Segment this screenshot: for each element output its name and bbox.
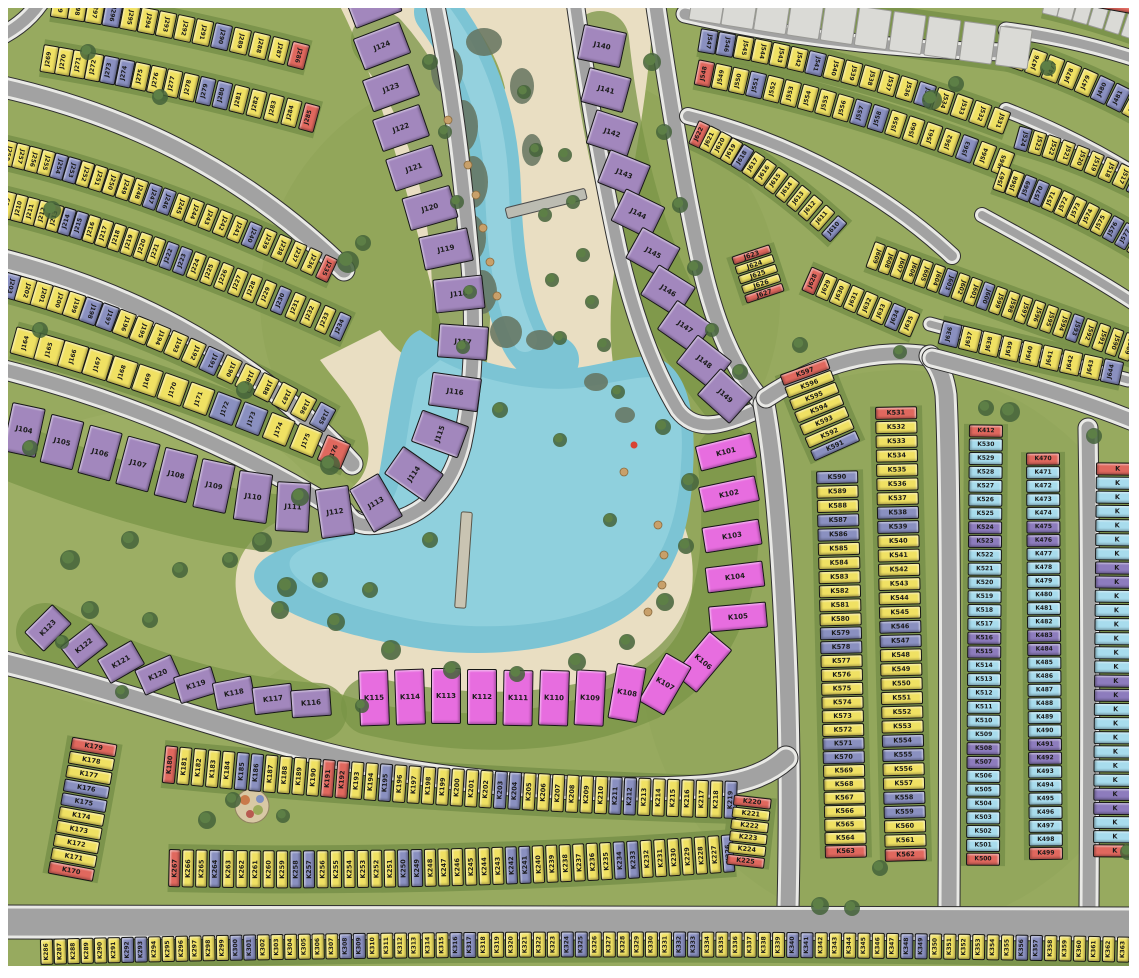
plot-K565[interactable]: K565 <box>824 818 866 832</box>
plot-K195[interactable]: K195 <box>378 763 394 802</box>
plot-K491[interactable]: K491 <box>1028 738 1062 751</box>
plot-K325[interactable]: K325 <box>575 931 588 957</box>
plot-K249[interactable]: K249 <box>410 849 423 887</box>
plot-K210[interactable]: K210 <box>594 776 609 815</box>
plot-K483[interactable]: K483 <box>1027 629 1061 642</box>
plot-K322[interactable]: K322 <box>533 932 546 958</box>
plot-K297[interactable]: K297 <box>189 935 202 961</box>
plot-K476[interactable]: K476 <box>1026 534 1060 547</box>
plot-K345[interactable]: K345 <box>857 933 870 959</box>
plot-K550[interactable]: K550 <box>880 677 922 691</box>
plot-K574[interactable]: K574 <box>821 696 863 710</box>
plot-K319[interactable]: K319 <box>491 932 504 958</box>
plot-K292[interactable]: K292 <box>121 937 134 963</box>
plot-K522[interactable]: K522 <box>968 549 1002 562</box>
plot-K528[interactable]: K528 <box>969 466 1003 479</box>
plot-K103[interactable]: K103 <box>701 519 762 554</box>
plot-K239[interactable]: K239 <box>545 844 559 883</box>
plot-K340[interactable]: K340 <box>786 932 799 958</box>
plot-K503[interactable]: K503 <box>966 811 1000 824</box>
plot-K118[interactable]: K118 <box>212 675 257 710</box>
plot-K563[interactable]: K563 <box>825 845 867 859</box>
plot-K194[interactable]: K194 <box>363 762 379 801</box>
plot-K567[interactable]: K567 <box>824 791 866 805</box>
plot-K354[interactable]: K354 <box>986 934 999 960</box>
plot-K244[interactable]: K244 <box>478 847 492 885</box>
plot-K477[interactable]: K477 <box>1027 548 1061 561</box>
plot-K206[interactable]: K206 <box>536 773 551 812</box>
plot-K323[interactable]: K323 <box>547 932 560 958</box>
plot-K486[interactable]: K486 <box>1027 670 1061 683</box>
plot-K341[interactable]: K341 <box>800 932 813 958</box>
plot-K545[interactable]: K545 <box>879 606 921 620</box>
plot-K558[interactable]: K558 <box>883 791 925 805</box>
plot-K473[interactable]: K473 <box>1026 493 1060 506</box>
plot-K326[interactable]: K326 <box>589 931 602 957</box>
plot-K487[interactable]: K487 <box>1027 684 1061 697</box>
plot-K548[interactable]: K548 <box>880 648 922 662</box>
plot-J286[interactable]: J286 <box>286 41 310 71</box>
plot-K557[interactable]: K557 <box>883 777 925 791</box>
plot-K492[interactable]: K492 <box>1028 752 1062 765</box>
plot-K495[interactable]: K495 <box>1028 792 1062 805</box>
plot-K255[interactable]: K255 <box>330 850 343 888</box>
plot-K538[interactable]: K538 <box>877 506 919 520</box>
plot-K362[interactable]: K362 <box>1102 936 1115 962</box>
plot-K488[interactable]: K488 <box>1028 697 1062 710</box>
plot-K256[interactable]: K256 <box>316 850 329 888</box>
plot-K213[interactable]: K213 <box>637 778 652 816</box>
plot-K350[interactable]: K350 <box>929 933 942 959</box>
plot-J122[interactable]: J122 <box>372 104 430 152</box>
plot-K585[interactable]: K585 <box>818 542 860 556</box>
plot-K294[interactable]: K294 <box>148 936 161 962</box>
plot-K237[interactable]: K237 <box>572 843 586 882</box>
plot-K546[interactable]: K546 <box>879 620 921 634</box>
plot-K498[interactable]: K498 <box>1029 833 1063 846</box>
plot-K305[interactable]: K305 <box>298 934 311 960</box>
plot-K324[interactable]: K324 <box>561 932 574 958</box>
plot-K331[interactable]: K331 <box>659 931 672 957</box>
plot-J120[interactable]: J120 <box>401 185 458 231</box>
plot-K568[interactable]: K568 <box>823 777 865 791</box>
plot-K470[interactable]: K470 <box>1026 452 1060 465</box>
plot-K539[interactable]: K539 <box>877 520 919 534</box>
plot-K344[interactable]: K344 <box>843 932 856 958</box>
plot-K234[interactable]: K234 <box>613 841 627 880</box>
plot-K513[interactable]: K513 <box>967 673 1001 686</box>
plot-K214[interactable]: K214 <box>651 778 666 816</box>
plot-K299[interactable]: K299 <box>216 935 229 961</box>
plot-K553[interactable]: K553 <box>881 720 923 734</box>
plot-J141[interactable]: J141 <box>580 67 632 113</box>
plot-K559[interactable]: K559 <box>884 805 926 819</box>
plot-J105[interactable]: J105 <box>39 414 84 471</box>
plot-K315[interactable]: K315 <box>436 932 449 958</box>
plot-K296[interactable]: K296 <box>175 936 188 962</box>
plot-K504[interactable]: K504 <box>966 797 1000 810</box>
plot-K500[interactable]: K500 <box>966 853 1000 866</box>
plot-K412[interactable]: K412 <box>969 424 1003 437</box>
plot-K581[interactable]: K581 <box>819 598 861 612</box>
plot-K560[interactable]: K560 <box>884 819 926 833</box>
plot-K311[interactable]: K311 <box>380 933 393 959</box>
plot-K263[interactable]: K263 <box>222 850 235 888</box>
plot-K241[interactable]: K241 <box>518 846 532 884</box>
plot-J121[interactable]: J121 <box>385 144 443 192</box>
plot-K253[interactable]: K253 <box>357 850 370 888</box>
plot-K303[interactable]: K303 <box>270 934 283 960</box>
plot-K215[interactable]: K215 <box>666 779 681 817</box>
plot-K306[interactable]: K306 <box>311 933 324 959</box>
plot-K484[interactable]: K484 <box>1027 643 1061 656</box>
plot-K551[interactable]: K551 <box>881 691 923 705</box>
plot-K265[interactable]: K265 <box>195 850 208 888</box>
plot-K530[interactable]: K530 <box>969 438 1003 451</box>
plot-K266[interactable]: K266 <box>182 849 195 887</box>
plot-K518[interactable]: K518 <box>967 604 1001 617</box>
plot-K247[interactable]: K247 <box>437 848 450 886</box>
plot-K291[interactable]: K291 <box>107 937 120 963</box>
plot-K236[interactable]: K236 <box>586 843 600 882</box>
plot-K196[interactable]: K196 <box>392 764 408 803</box>
plot-K564[interactable]: K564 <box>824 831 866 845</box>
plot-J644[interactable]: J644 <box>1100 358 1124 386</box>
plot-K577[interactable]: K577 <box>820 654 862 668</box>
plot-J111[interactable]: J111 <box>275 481 312 533</box>
plot-K512[interactable]: K512 <box>967 687 1001 700</box>
plot-K507[interactable]: K507 <box>966 756 1000 769</box>
plot-K246[interactable]: K246 <box>451 848 464 886</box>
plot-K510[interactable]: K510 <box>967 715 1001 728</box>
plot-K197[interactable]: K197 <box>406 765 422 804</box>
plot-K252[interactable]: K252 <box>370 850 383 888</box>
plot-K506[interactable]: K506 <box>966 770 1000 783</box>
plot-K587[interactable]: K587 <box>817 513 859 527</box>
plot-K355[interactable]: K355 <box>1001 934 1014 960</box>
plot-K494[interactable]: K494 <box>1028 779 1062 792</box>
plot-K209[interactable]: K209 <box>579 775 594 814</box>
plot-K363[interactable]: K363 <box>1116 936 1129 962</box>
plot-K533[interactable]: K533 <box>876 435 918 449</box>
plot-K547[interactable]: K547 <box>880 634 922 648</box>
plot-K351[interactable]: K351 <box>943 934 956 960</box>
plot-K203[interactable]: K203 <box>493 771 508 810</box>
plot-K536[interactable]: K536 <box>876 477 918 491</box>
plot-K478[interactable]: K478 <box>1027 561 1061 574</box>
plot-K191[interactable]: K191 <box>320 759 336 798</box>
plot-K212[interactable]: K212 <box>623 777 638 816</box>
plot-K250[interactable]: K250 <box>397 849 410 887</box>
plot-J106[interactable]: J106 <box>77 424 123 481</box>
plot-K109[interactable]: K109 <box>574 669 607 726</box>
plot-K360[interactable]: K360 <box>1073 936 1086 962</box>
plot-K508[interactable]: K508 <box>967 742 1001 755</box>
plot-J116[interactable]: J116 <box>428 372 482 413</box>
plot-K229[interactable]: K229 <box>680 837 695 876</box>
plot-K254[interactable]: K254 <box>343 850 356 888</box>
plot-K566[interactable]: K566 <box>824 804 866 818</box>
plot-K499[interactable]: K499 <box>1029 847 1063 860</box>
plot-K227[interactable]: K227 <box>707 835 722 874</box>
plot-J107[interactable]: J107 <box>115 435 161 492</box>
plot-K540[interactable]: K540 <box>877 534 919 548</box>
plot-K207[interactable]: K207 <box>551 774 566 813</box>
plot-K320[interactable]: K320 <box>505 932 518 958</box>
plot-K576[interactable]: K576 <box>821 668 863 682</box>
plot-K572[interactable]: K572 <box>822 723 864 737</box>
plot-unit[interactable] <box>959 21 997 65</box>
plot-K230[interactable]: K230 <box>667 838 682 877</box>
plot-K321[interactable]: K321 <box>519 932 532 958</box>
plot-K328[interactable]: K328 <box>617 931 630 957</box>
plot-K527[interactable]: K527 <box>968 480 1002 493</box>
plot-K529[interactable]: K529 <box>969 452 1003 465</box>
plot-K318[interactable]: K318 <box>477 932 490 958</box>
plot-K353[interactable]: K353 <box>972 934 985 960</box>
plot-K509[interactable]: K509 <box>967 728 1001 741</box>
plot-K343[interactable]: K343 <box>829 932 842 958</box>
plot-K501[interactable]: K501 <box>966 839 1000 852</box>
plot-K192[interactable]: K192 <box>334 760 350 799</box>
plot-K248[interactable]: K248 <box>424 849 437 887</box>
plot-K493[interactable]: K493 <box>1028 765 1062 778</box>
plot-K301[interactable]: K301 <box>243 934 256 960</box>
plot-K520[interactable]: K520 <box>968 576 1002 589</box>
plot-K338[interactable]: K338 <box>758 932 771 958</box>
plot-J119[interactable]: J119 <box>418 227 474 271</box>
plot-K235[interactable]: K235 <box>599 842 613 881</box>
plot-K238[interactable]: K238 <box>559 844 573 883</box>
plot-K571[interactable]: K571 <box>822 737 864 751</box>
plot-K330[interactable]: K330 <box>645 931 658 957</box>
plot-J108[interactable]: J108 <box>153 447 198 504</box>
plot-K202[interactable]: K202 <box>478 770 493 809</box>
plot-K489[interactable]: K489 <box>1028 711 1062 724</box>
plot-K304[interactable]: K304 <box>284 934 297 960</box>
plot-K583[interactable]: K583 <box>818 570 860 584</box>
plot-K588[interactable]: K588 <box>817 499 859 513</box>
plot-K570[interactable]: K570 <box>823 750 865 764</box>
plot-K523[interactable]: K523 <box>968 535 1002 548</box>
plot-K327[interactable]: K327 <box>603 931 616 957</box>
plot-K474[interactable]: K474 <box>1026 507 1060 520</box>
plot-K287[interactable]: K287 <box>53 938 67 964</box>
plot-K502[interactable]: K502 <box>966 825 1000 838</box>
plot-K193[interactable]: K193 <box>349 761 365 800</box>
plot-K562[interactable]: K562 <box>885 848 927 862</box>
plot-K521[interactable]: K521 <box>968 563 1002 576</box>
plot-K233[interactable]: K233 <box>626 840 641 879</box>
plot-K543[interactable]: K543 <box>878 577 920 591</box>
plot-K357[interactable]: K357 <box>1030 935 1043 961</box>
plot-K302[interactable]: K302 <box>257 934 270 960</box>
plot-K349[interactable]: K349 <box>914 933 927 959</box>
plot-K472[interactable]: K472 <box>1026 480 1060 493</box>
plot-K361[interactable]: K361 <box>1087 936 1100 962</box>
plot-K346[interactable]: K346 <box>872 933 885 959</box>
plot-K534[interactable]: K534 <box>876 449 918 463</box>
plot-J104[interactable]: J104 <box>2 402 46 458</box>
plot-K199[interactable]: K199 <box>435 767 451 806</box>
plot-K313[interactable]: K313 <box>408 932 421 958</box>
plot-K575[interactable]: K575 <box>821 682 863 696</box>
plot-K511[interactable]: K511 <box>967 701 1001 714</box>
plot-K482[interactable]: K482 <box>1027 616 1061 629</box>
plot-K584[interactable]: K584 <box>818 556 860 570</box>
plot-K108[interactable]: K108 <box>607 663 646 723</box>
plot-K549[interactable]: K549 <box>880 663 922 677</box>
plot-K554[interactable]: K554 <box>882 734 924 748</box>
plot-J112[interactable]: J112 <box>315 485 356 539</box>
plot-K232[interactable]: K232 <box>640 840 655 879</box>
plot-K264[interactable]: K264 <box>209 850 222 888</box>
plot-K578[interactable]: K578 <box>820 640 862 654</box>
plot-K309[interactable]: K309 <box>353 933 366 959</box>
plot-K342[interactable]: K342 <box>815 932 828 958</box>
plot-K332[interactable]: K332 <box>673 932 686 958</box>
plot-K537[interactable]: K537 <box>877 492 919 506</box>
plot-K542[interactable]: K542 <box>878 563 920 577</box>
plot-K298[interactable]: K298 <box>202 935 215 961</box>
plot-K471[interactable]: K471 <box>1026 466 1060 479</box>
plot-K200[interactable]: K200 <box>450 768 466 807</box>
plot-K329[interactable]: K329 <box>631 931 644 957</box>
plot-K505[interactable]: K505 <box>966 784 1000 797</box>
plot-J140[interactable]: J140 <box>577 24 628 68</box>
plot-K314[interactable]: K314 <box>422 932 435 958</box>
plot-K251[interactable]: K251 <box>384 849 397 887</box>
plot-K337[interactable]: K337 <box>744 932 757 958</box>
plot-K589[interactable]: K589 <box>816 485 858 499</box>
plot-K115[interactable]: K115 <box>358 669 390 726</box>
plot-K245[interactable]: K245 <box>464 848 478 886</box>
plot-K208[interactable]: K208 <box>565 774 580 813</box>
plot-J124[interactable]: J124 <box>353 21 412 71</box>
plot-K339[interactable]: K339 <box>772 932 785 958</box>
plot-K352[interactable]: K352 <box>958 934 971 960</box>
plot-K497[interactable]: K497 <box>1029 820 1063 833</box>
plot-J114[interactable]: J114 <box>384 446 444 503</box>
plot-K107[interactable]: K107 <box>638 652 692 715</box>
plot-K525[interactable]: K525 <box>968 507 1002 520</box>
plot-K359[interactable]: K359 <box>1058 935 1071 961</box>
plot-K496[interactable]: K496 <box>1028 806 1062 819</box>
plot-K258[interactable]: K258 <box>290 850 302 888</box>
plot-K479[interactable]: K479 <box>1027 575 1061 588</box>
plot-K586[interactable]: K586 <box>817 528 859 542</box>
plot-K289[interactable]: K289 <box>80 938 93 964</box>
plot-K293[interactable]: K293 <box>134 936 147 962</box>
plot-K260[interactable]: K260 <box>263 850 276 888</box>
plot-K358[interactable]: K358 <box>1044 935 1057 961</box>
plot-K242[interactable]: K242 <box>505 846 519 884</box>
plot-K356[interactable]: K356 <box>1015 935 1028 961</box>
plot-K110[interactable]: K110 <box>538 669 570 726</box>
plot-K259[interactable]: K259 <box>276 850 288 888</box>
plot-K261[interactable]: K261 <box>249 850 262 888</box>
plot-K295[interactable]: K295 <box>161 936 174 962</box>
plot-K556[interactable]: K556 <box>882 762 924 776</box>
plot-K526[interactable]: K526 <box>968 493 1002 506</box>
plot-K243[interactable]: K243 <box>491 847 505 885</box>
plot-K582[interactable]: K582 <box>819 584 861 598</box>
plot-J118[interactable]: J118 <box>432 274 485 313</box>
plot-K517[interactable]: K517 <box>967 618 1001 631</box>
plot-K300[interactable]: K300 <box>229 935 242 961</box>
plot-K231[interactable]: K231 <box>653 839 668 878</box>
plot-K116[interactable]: K116 <box>290 688 332 719</box>
plot-K101[interactable]: K101 <box>695 432 758 471</box>
plot-K524[interactable]: K524 <box>968 521 1002 534</box>
plot-K312[interactable]: K312 <box>394 932 407 958</box>
plot-K333[interactable]: K333 <box>687 932 700 958</box>
plot-K541[interactable]: K541 <box>878 549 920 563</box>
plot-K262[interactable]: K262 <box>236 850 249 888</box>
plot-K267[interactable]: K267 <box>168 849 181 887</box>
plot-K205[interactable]: K205 <box>522 772 537 811</box>
plot-K561[interactable]: K561 <box>884 834 926 848</box>
plot-J115[interactable]: J115 <box>411 409 470 458</box>
plot-K216[interactable]: K216 <box>680 779 695 817</box>
plot-K480[interactable]: K480 <box>1027 588 1061 601</box>
plot-K580[interactable]: K580 <box>819 612 861 626</box>
plot-K114[interactable]: K114 <box>394 668 426 725</box>
plot-K336[interactable]: K336 <box>729 932 742 958</box>
plot-K552[interactable]: K552 <box>881 705 923 719</box>
plot-K310[interactable]: K310 <box>366 933 379 959</box>
plot-K516[interactable]: K516 <box>967 632 1001 645</box>
plot-J110[interactable]: J110 <box>233 470 274 524</box>
plot-K481[interactable]: K481 <box>1027 602 1061 615</box>
plot-K490[interactable]: K490 <box>1028 724 1062 737</box>
plot-K590[interactable]: K590 <box>816 470 858 484</box>
plot-K228[interactable]: K228 <box>694 836 709 875</box>
plot-K579[interactable]: K579 <box>820 626 862 640</box>
plot-K316[interactable]: K316 <box>449 932 462 958</box>
plot-K201[interactable]: K201 <box>464 769 480 808</box>
plot-K531[interactable]: K531 <box>875 406 917 420</box>
plot-J109[interactable]: J109 <box>192 458 236 514</box>
plot-K573[interactable]: K573 <box>822 709 864 723</box>
plot-K308[interactable]: K308 <box>339 933 352 959</box>
plot-K535[interactable]: K535 <box>876 463 918 477</box>
plot-K290[interactable]: K290 <box>94 937 107 963</box>
plot-K104[interactable]: K104 <box>705 561 766 594</box>
plot-K105[interactable]: K105 <box>708 602 768 633</box>
plot-K211[interactable]: K211 <box>608 776 623 815</box>
plot-K113[interactable]: K113 <box>431 668 461 724</box>
plot-K307[interactable]: K307 <box>325 933 338 959</box>
plot-K288[interactable]: K288 <box>67 938 81 964</box>
plot-K334[interactable]: K334 <box>701 932 714 958</box>
plot-K102[interactable]: K102 <box>698 475 760 512</box>
plot-unit[interactable] <box>995 26 1033 70</box>
plot-J176[interactable]: J176 <box>316 434 351 470</box>
plot-unit[interactable] <box>923 16 961 60</box>
plot-K217[interactable]: K217 <box>695 780 710 818</box>
plot-K514[interactable]: K514 <box>967 659 1001 672</box>
plot-K569[interactable]: K569 <box>823 764 865 778</box>
plot-J285[interactable]: J285 <box>298 102 320 133</box>
plot-K198[interactable]: K198 <box>421 766 437 805</box>
plot-K286[interactable]: K286 <box>40 939 54 965</box>
plot-K240[interactable]: K240 <box>532 845 546 883</box>
plot-K532[interactable]: K532 <box>875 420 917 434</box>
plot-K117[interactable]: K117 <box>251 683 294 716</box>
plot-K347[interactable]: K347 <box>886 933 899 959</box>
plot-K257[interactable]: K257 <box>303 850 316 888</box>
